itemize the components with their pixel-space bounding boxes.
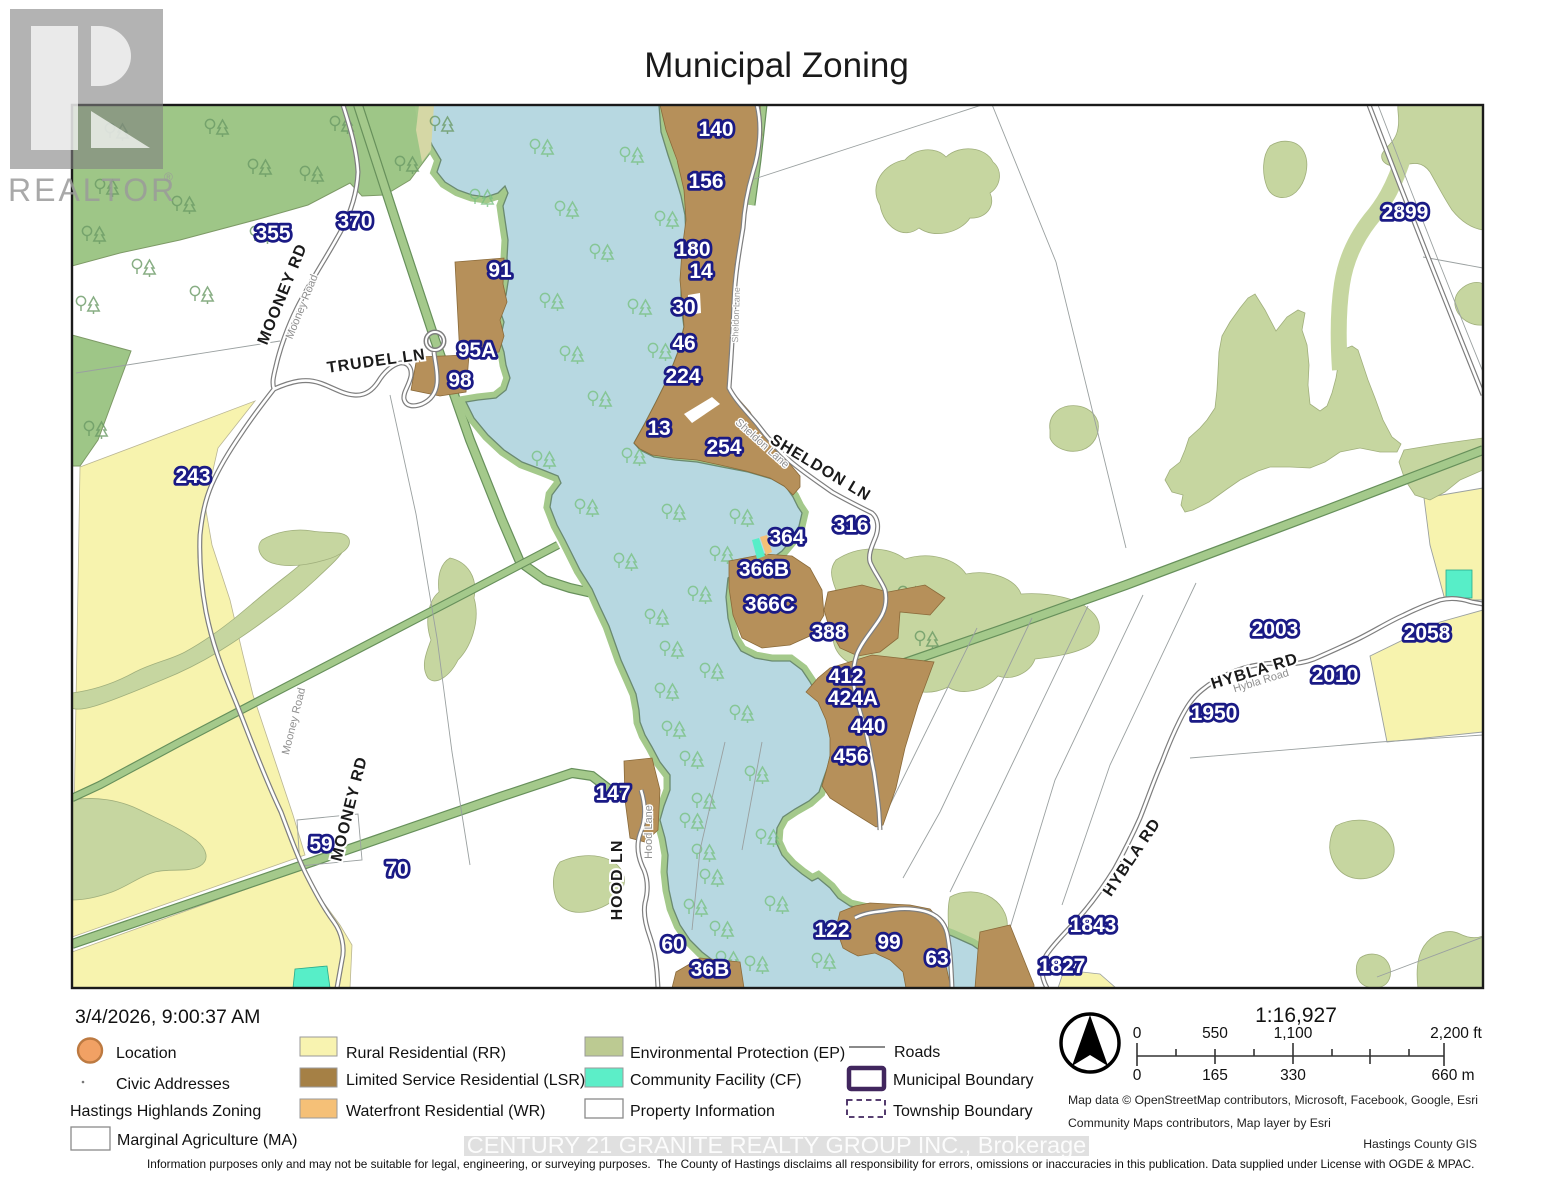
svg-text:366C: 366C xyxy=(745,593,795,616)
svg-text:2899: 2899 xyxy=(1382,201,1429,224)
svg-text:316: 316 xyxy=(833,514,868,537)
svg-text:224: 224 xyxy=(665,365,700,388)
svg-text:440: 440 xyxy=(850,715,885,738)
svg-text:14: 14 xyxy=(689,260,713,283)
svg-text:456: 456 xyxy=(833,745,868,768)
svg-text:180: 180 xyxy=(675,238,710,261)
svg-text:2003: 2003 xyxy=(1252,618,1299,641)
svg-text:99: 99 xyxy=(877,931,900,954)
svg-text:60: 60 xyxy=(661,933,684,956)
svg-text:REALTOR: REALTOR xyxy=(8,172,177,208)
svg-text:2058: 2058 xyxy=(1404,622,1451,645)
svg-text:1843: 1843 xyxy=(1070,914,1117,937)
svg-text:1827: 1827 xyxy=(1039,955,1086,978)
svg-text:70: 70 xyxy=(385,858,408,881)
svg-text:243: 243 xyxy=(175,465,210,488)
svg-text:366B: 366B xyxy=(739,558,789,581)
svg-text:Sheldon Lane: Sheldon Lane xyxy=(730,287,742,343)
svg-text:254: 254 xyxy=(706,436,741,459)
svg-text:®: ® xyxy=(164,170,173,184)
svg-text:95A: 95A xyxy=(458,339,497,362)
svg-text:140: 140 xyxy=(698,118,733,141)
svg-text:364: 364 xyxy=(769,526,804,549)
svg-text:63: 63 xyxy=(925,947,948,970)
svg-text:122: 122 xyxy=(814,919,849,942)
svg-text:30: 30 xyxy=(672,296,695,319)
svg-text:HOOD LN: HOOD LN xyxy=(609,840,626,921)
svg-text:370: 370 xyxy=(337,210,372,233)
svg-text:412: 412 xyxy=(828,665,863,688)
svg-text:147: 147 xyxy=(595,782,630,805)
svg-text:Hood Lane: Hood Lane xyxy=(643,805,655,859)
svg-text:355: 355 xyxy=(255,222,290,245)
svg-text:2010: 2010 xyxy=(1312,664,1359,687)
svg-text:1950: 1950 xyxy=(1191,702,1238,725)
svg-text:46: 46 xyxy=(672,332,695,355)
svg-text:13: 13 xyxy=(647,417,670,440)
svg-text:59: 59 xyxy=(309,833,332,856)
svg-text:388: 388 xyxy=(811,621,846,644)
svg-text:98: 98 xyxy=(448,369,472,392)
svg-text:424A: 424A xyxy=(828,687,878,710)
svg-text:91: 91 xyxy=(488,259,512,282)
svg-text:156: 156 xyxy=(688,170,723,193)
svg-text:36B: 36B xyxy=(691,958,730,981)
